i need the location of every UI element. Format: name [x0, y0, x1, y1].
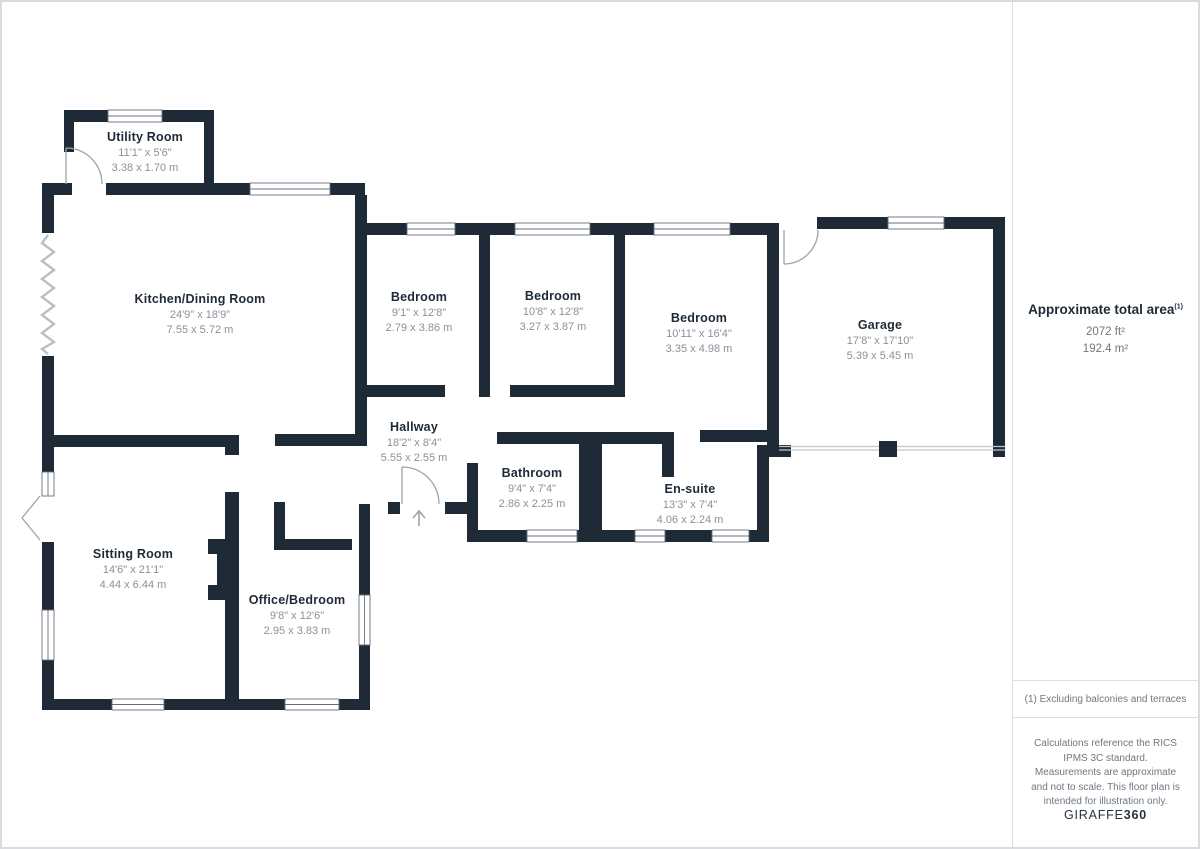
giraffe360-logo: GIRAFFE360	[1013, 808, 1198, 822]
room-dimensions-metric: 4.06 x 2.24 m	[657, 513, 724, 528]
room-label-en-suite: En-suite 13'3" x 7'4" 4.06 x 2.24 m	[657, 482, 724, 527]
room-dimensions-imperial: 24'9" x 18'9"	[135, 308, 266, 323]
windows-layer	[42, 110, 944, 710]
disclaimer-text: Calculations reference the RICS IPMS 3C …	[1030, 737, 1181, 810]
room-name: Utility Room	[107, 130, 183, 144]
total-area-title: Approximate total area(1)	[1013, 302, 1198, 317]
room-label-bathroom: Bathroom 9'4" x 7'4" 2.86 x 2.25 m	[499, 466, 566, 511]
entrance-arrow-icon	[413, 511, 425, 526]
brand-number: 360	[1124, 808, 1147, 822]
room-dimensions-imperial: 11'1" x 5'6"	[107, 146, 183, 161]
walls-layer	[42, 110, 1005, 710]
room-dimensions-metric: 3.27 x 3.87 m	[520, 320, 587, 335]
garage-side-door-arc	[784, 230, 818, 264]
room-label-sitting-room: Sitting Room 14'6" x 21'1" 4.44 x 6.44 m	[93, 547, 173, 592]
room-name: Garage	[847, 318, 914, 332]
room-label-utility-room: Utility Room 11'1" x 5'6" 3.38 x 1.70 m	[107, 130, 183, 175]
room-dimensions-imperial: 9'8" x 12'6"	[249, 609, 346, 624]
room-name: Bedroom	[386, 290, 453, 304]
room-name: Sitting Room	[93, 547, 173, 561]
room-dimensions-imperial: 9'1" x 12'8"	[386, 306, 453, 321]
room-label-hallway: Hallway 18'2" x 8'4" 5.55 x 2.55 m	[381, 420, 448, 465]
total-area-block: Approximate total area(1) 2072 ft² 192.4…	[1013, 302, 1198, 355]
garage-door-line	[779, 441, 1005, 457]
room-dimensions-metric: 3.35 x 4.98 m	[666, 342, 733, 357]
room-dimensions-metric: 7.55 x 5.72 m	[135, 323, 266, 338]
front-door-arc	[402, 467, 439, 504]
room-dimensions-metric: 5.39 x 5.45 m	[847, 349, 914, 364]
total-area-ft: 2072 ft²	[1013, 326, 1198, 338]
room-name: Bathroom	[499, 466, 566, 480]
zigzag-wall-symbol	[38, 233, 58, 356]
room-dimensions-imperial: 18'2" x 8'4"	[381, 436, 448, 451]
room-dimensions-imperial: 9'4" x 7'4"	[499, 482, 566, 497]
room-label-office-bedroom: Office/Bedroom 9'8" x 12'6" 2.95 x 3.83 …	[249, 593, 346, 638]
room-label-bedroom-3: Bedroom 10'11" x 16'4" 3.35 x 4.98 m	[666, 311, 733, 356]
room-dimensions-imperial: 10'8" x 12'8"	[520, 305, 587, 320]
room-name: Office/Bedroom	[249, 593, 346, 607]
room-name: En-suite	[657, 482, 724, 496]
room-dimensions-metric: 4.44 x 6.44 m	[93, 578, 173, 593]
fireplace-recess	[208, 554, 217, 585]
side-panel: Approximate total area(1) 2072 ft² 192.4…	[1012, 2, 1198, 847]
room-label-garage: Garage 17'8" x 17'10" 5.39 x 5.45 m	[847, 318, 914, 363]
brand-name: GIRAFFE	[1064, 808, 1124, 822]
total-area-title-text: Approximate total area	[1028, 302, 1174, 317]
room-dimensions-imperial: 17'8" x 17'10"	[847, 334, 914, 349]
room-dimensions-metric: 3.38 x 1.70 m	[107, 161, 183, 176]
room-name: Bedroom	[520, 289, 587, 303]
room-name: Hallway	[381, 420, 448, 434]
total-area-footnote-marker: (1)	[1174, 304, 1183, 311]
room-dimensions-imperial: 13'3" x 7'4"	[657, 498, 724, 513]
room-dimensions-metric: 2.86 x 2.25 m	[499, 497, 566, 512]
room-label-bedroom-1: Bedroom 9'1" x 12'8" 2.79 x 3.86 m	[386, 290, 453, 335]
room-dimensions-metric: 2.79 x 3.86 m	[386, 321, 453, 336]
room-dimensions-metric: 5.55 x 2.55 m	[381, 451, 448, 466]
utility-door-arc	[66, 148, 102, 184]
room-label-bedroom-2: Bedroom 10'8" x 12'8" 3.27 x 3.87 m	[520, 289, 587, 334]
total-area-m: 192.4 m²	[1013, 343, 1198, 355]
footnote: (1) Excluding balconies and terraces	[1013, 680, 1198, 718]
room-dimensions-imperial: 14'6" x 21'1"	[93, 563, 173, 578]
room-name: Kitchen/Dining Room	[135, 292, 266, 306]
floor-plan-page: Utility Room 11'1" x 5'6" 3.38 x 1.70 m …	[0, 0, 1200, 849]
room-dimensions-metric: 2.95 x 3.83 m	[249, 624, 346, 639]
room-name: Bedroom	[666, 311, 733, 325]
french-door-symbol	[22, 496, 40, 540]
window-mullions	[48, 116, 944, 705]
room-label-kitchen-dining-room: Kitchen/Dining Room 24'9" x 18'9" 7.55 x…	[135, 292, 266, 337]
room-dimensions-imperial: 10'11" x 16'4"	[666, 327, 733, 342]
